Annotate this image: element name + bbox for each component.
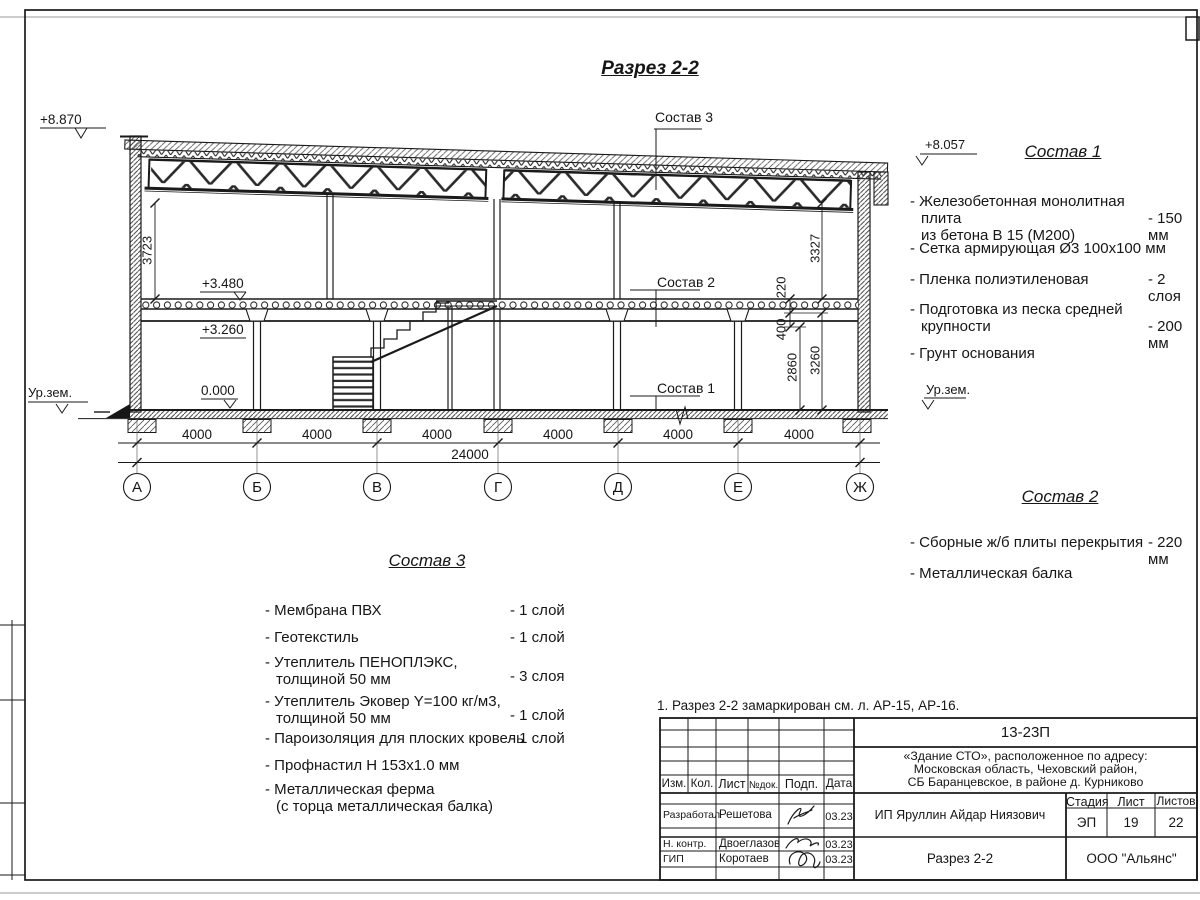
tb-drawing-title: Разрез 2-2 bbox=[856, 851, 1064, 866]
elev-slab-soffit: +3.260 bbox=[202, 322, 244, 337]
dim-span-2: 4000 bbox=[287, 427, 347, 442]
sostav1-heading: Состав 1 bbox=[1000, 142, 1126, 161]
sostav3-item-5-name: - Пароизоляция для плоских кровель bbox=[265, 730, 526, 747]
sostav3-item-1-name: - Мембрана ПВХ bbox=[265, 602, 516, 619]
sostav2-item-1-name: - Сборные ж/б плиты перекрытия bbox=[910, 534, 1169, 551]
sostav1-item-2-name: - Сетка армирующая Ø3 100х100 мм bbox=[910, 240, 1169, 257]
tb-row1-name: Решетова bbox=[719, 809, 777, 822]
tb-row2-date: 03.23 bbox=[824, 839, 854, 852]
entrance-ramp bbox=[106, 404, 130, 418]
sostav3-item-4-qty: - 1 слой bbox=[510, 707, 565, 724]
dim-span-6: 4000 bbox=[769, 427, 829, 442]
axis-e: Е bbox=[724, 479, 752, 496]
elev-roof-right: +8.057 bbox=[925, 138, 965, 153]
tb-col-podp: Подп. bbox=[779, 777, 824, 791]
axis-a: А bbox=[123, 479, 151, 496]
sostav3-item-5-qty: - 1 слой bbox=[510, 730, 565, 747]
callout-sostav1: Состав 1 bbox=[657, 381, 715, 397]
tb-col-kol: Кол. bbox=[688, 778, 716, 791]
tb-sheet-label: Лист bbox=[1107, 795, 1155, 809]
dim-span-1: 4000 bbox=[167, 427, 227, 442]
dim-span-4: 4000 bbox=[528, 427, 588, 442]
dim-span-5: 4000 bbox=[648, 427, 708, 442]
sostav3-item-4-name: - Утеплитель Эковер Y=100 кг/м3, толщино… bbox=[265, 693, 516, 727]
sostav2-item-1-qty: - 220 мм bbox=[1148, 534, 1200, 568]
elev-floor: 0.000 bbox=[201, 383, 235, 398]
roof-fascia bbox=[874, 172, 888, 205]
tb-sheets-value: 22 bbox=[1155, 815, 1197, 830]
tb-sheets-label: Листов bbox=[1155, 795, 1197, 809]
sostav1-item-4-name: - Подготовка из песка средней крупности bbox=[910, 301, 1169, 335]
tb-col-list: Лист bbox=[716, 777, 748, 791]
page-title: Разрез 2-2 bbox=[560, 58, 740, 80]
sostav3-heading: Состав 3 bbox=[364, 551, 490, 570]
sostav1-item-5-name: - Грунт основания bbox=[910, 345, 1169, 362]
axis-v: В bbox=[363, 479, 391, 496]
tb-row3-date: 03.23 bbox=[824, 854, 854, 867]
tb-col-data: Дата bbox=[824, 777, 854, 791]
tb-stage-value: ЭП bbox=[1066, 815, 1107, 830]
sostav1-item-3-name: - Пленка полиэтиленовая bbox=[910, 271, 1169, 288]
callout-sostav2: Состав 2 bbox=[657, 275, 715, 291]
sostav3-item-2-qty: - 1 слой bbox=[510, 629, 565, 646]
column-capitals bbox=[246, 309, 749, 321]
sostav2-item-2-name: - Металлическая балка bbox=[910, 565, 1169, 582]
sostav3-item-7-name: - Металлическая ферма (с торца металличе… bbox=[265, 781, 516, 815]
tb-row3-name: Коротаев bbox=[719, 853, 777, 866]
vdim-3723: 3723 bbox=[141, 215, 156, 285]
axis-zh: Ж bbox=[846, 479, 874, 496]
callout-sostav3: Состав 3 bbox=[655, 110, 713, 126]
tb-row1-role: Разработал bbox=[663, 810, 715, 822]
tb-sheet-value: 19 bbox=[1107, 815, 1155, 830]
axis-b: Б bbox=[243, 479, 271, 496]
dim-span-3: 4000 bbox=[407, 427, 467, 442]
axis-d: Д bbox=[604, 479, 632, 496]
tb-client: ИП Яруллин Айдар Ниязович bbox=[856, 808, 1064, 822]
sostav3-item-3-name: - Утеплитель ПЕНОПЛЭКС, толщиной 50 мм bbox=[265, 654, 516, 688]
sostav3-item-1-qty: - 1 слой bbox=[510, 602, 565, 619]
tb-col-ndok: №док. bbox=[748, 780, 779, 791]
sostav3-item-2-name: - Геотекстиль bbox=[265, 629, 516, 646]
tb-company: ООО "Альянс" bbox=[1068, 851, 1195, 866]
tb-row2-name: Двоеглазов bbox=[719, 838, 777, 851]
sostav2-heading: Состав 2 bbox=[997, 487, 1123, 506]
tb-stage-label: Стадия bbox=[1066, 795, 1107, 809]
tb-doc-number: 13-23П bbox=[854, 724, 1197, 741]
elev-ground-right: Ур.зем. bbox=[926, 383, 970, 398]
vdim-3327: 3327 bbox=[809, 213, 824, 283]
foundation-pads bbox=[128, 420, 871, 433]
drawing-sheet: Разрез 2-2 Состав 3 Состав 2 Состав 1 +8… bbox=[0, 0, 1200, 900]
elev-ground-left: Ур.зем. bbox=[28, 386, 72, 401]
elev-roof-left: +8.870 bbox=[40, 112, 82, 127]
staircase bbox=[333, 301, 497, 410]
tb-row3-role: ГИП bbox=[663, 854, 715, 866]
left-edge-strip bbox=[0, 620, 25, 880]
elev-slab-top: +3.480 bbox=[202, 276, 244, 291]
vdim-2860: 2860 bbox=[786, 332, 801, 402]
roof-assembly bbox=[123, 140, 887, 213]
sostav3-item-3-qty: - 3 слоя bbox=[510, 668, 565, 685]
tb-project: «Здание СТО», расположенное по адресу: М… bbox=[854, 750, 1197, 789]
dim-total: 24000 bbox=[435, 447, 505, 462]
tb-row1-date: 03.23 bbox=[824, 811, 854, 824]
sheet-note: 1. Разрез 2-2 замаркирован см. л. АР-15,… bbox=[657, 698, 959, 713]
tb-row2-role: Н. контр. bbox=[663, 839, 715, 851]
sostav1-item-1-name: - Железобетонная монолитная плита из бет… bbox=[910, 193, 1169, 244]
vdim-3260: 3260 bbox=[809, 325, 824, 395]
tb-col-izm: Изм. bbox=[660, 778, 688, 791]
axis-g: Г bbox=[484, 479, 512, 496]
sostav3-item-6-name: - Профнастил Н 153х1.0 мм bbox=[265, 757, 516, 774]
